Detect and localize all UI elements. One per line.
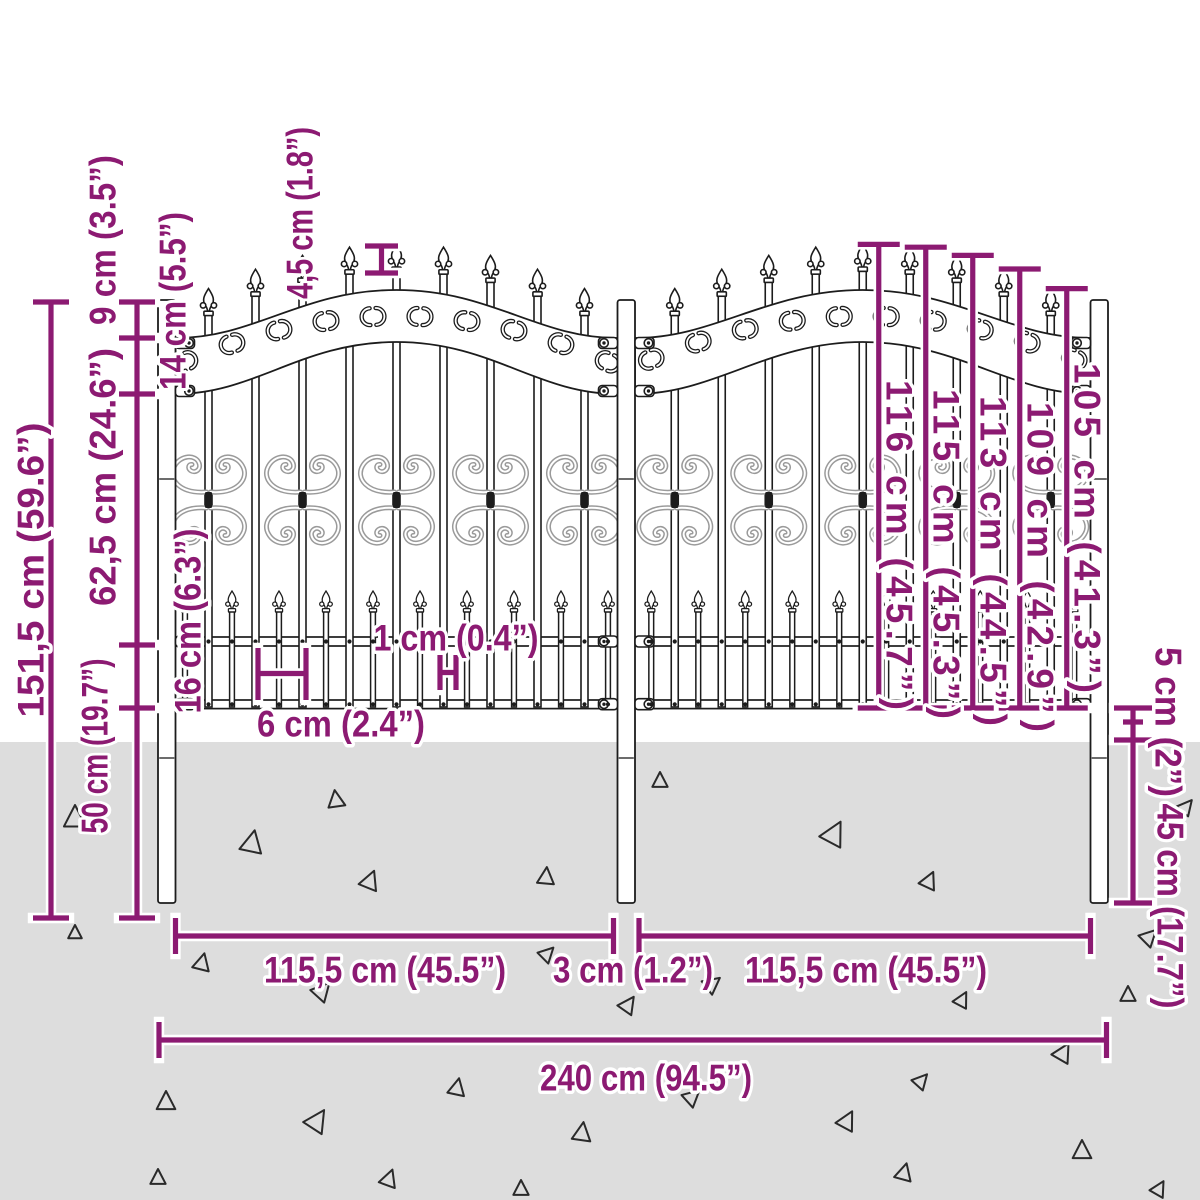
spear-finial-icon bbox=[529, 269, 545, 296]
picket-finial-icon bbox=[320, 591, 333, 612]
spear-finial-icon bbox=[808, 247, 824, 274]
dim-label-ground-section: 50 cm (19.7”) bbox=[75, 659, 116, 834]
rivet bbox=[720, 639, 724, 643]
rivet bbox=[790, 702, 794, 706]
rivet bbox=[720, 702, 724, 706]
picket-finial-icon bbox=[739, 591, 752, 612]
scroll-clip bbox=[487, 492, 494, 508]
rivet bbox=[696, 639, 700, 643]
rivet bbox=[861, 639, 865, 643]
rivet bbox=[978, 639, 982, 643]
fence-picket bbox=[649, 612, 654, 707]
picket-finial-icon bbox=[645, 591, 658, 612]
rivet bbox=[535, 702, 539, 706]
rivet bbox=[743, 639, 747, 643]
dim-label-spear-pitch: 4,5 cm (1.8”) bbox=[280, 127, 321, 299]
scroll-clip bbox=[581, 492, 588, 508]
fence-picket bbox=[696, 612, 701, 707]
dim-label-panel-width-right: 115,5 cm (45.5”) bbox=[745, 950, 987, 991]
dim-label-bar-thickness: 1 cm (0.4”) bbox=[374, 618, 539, 659]
spear-finial-icon bbox=[761, 255, 777, 282]
dim-label-spike-depth: 45 cm (17.7”) bbox=[1150, 804, 1191, 1009]
rivet bbox=[488, 702, 492, 706]
hinge-bracket bbox=[599, 338, 618, 349]
fence-picket bbox=[790, 612, 795, 707]
rivet bbox=[324, 639, 328, 643]
rivet bbox=[1002, 639, 1006, 643]
rivet bbox=[790, 639, 794, 643]
dim-label-total-height: 151,5 cm (59.6”) bbox=[11, 423, 52, 718]
spear-finial-icon bbox=[576, 289, 592, 316]
picket-finial-icon bbox=[508, 591, 521, 612]
rivet bbox=[649, 639, 653, 643]
rivet bbox=[441, 702, 445, 706]
dim-label-post-width: 3 cm (1.2”) bbox=[553, 950, 713, 991]
fence-dimension-diagram: 151,5 cm (59.6”) 9 cm (3.5”) 14 cm (5.5”… bbox=[0, 0, 1200, 1200]
rivet bbox=[465, 702, 469, 706]
rivet bbox=[673, 639, 677, 643]
rivet bbox=[767, 639, 771, 643]
rivet bbox=[743, 702, 747, 706]
rivet bbox=[884, 639, 888, 643]
rivet bbox=[582, 702, 586, 706]
fence-picket bbox=[743, 612, 748, 707]
spear-finial-icon bbox=[482, 255, 498, 282]
picket-finial-icon bbox=[367, 591, 380, 612]
hinge-bracket bbox=[599, 386, 618, 397]
fence-picket bbox=[837, 612, 842, 707]
scroll-clip bbox=[765, 492, 772, 508]
rivet bbox=[814, 702, 818, 706]
fence-post bbox=[618, 300, 636, 903]
rivet bbox=[837, 702, 841, 706]
picket-finial-icon bbox=[555, 591, 568, 612]
spear-finial-icon bbox=[200, 289, 216, 316]
scroll-clip bbox=[299, 492, 306, 508]
fence-picket bbox=[606, 612, 611, 707]
rivet bbox=[559, 639, 563, 643]
fence-picket bbox=[559, 612, 564, 707]
picket-finial-icon bbox=[602, 591, 615, 612]
picket-finial-icon bbox=[273, 591, 286, 612]
rivet bbox=[277, 639, 281, 643]
dim-label-mid-section: 62,5 cm (24.6”) bbox=[83, 348, 124, 606]
hinge-bracket bbox=[635, 386, 654, 397]
rivet bbox=[767, 702, 771, 706]
spear-finial-icon bbox=[714, 269, 730, 296]
rivet bbox=[230, 702, 234, 706]
dim-label-top-section: 9 cm (3.5”) bbox=[83, 155, 124, 325]
rivet bbox=[837, 639, 841, 643]
rivet bbox=[649, 702, 653, 706]
fence-picket bbox=[324, 612, 329, 707]
rivet bbox=[696, 702, 700, 706]
rivet bbox=[347, 639, 351, 643]
scroll-clip bbox=[205, 492, 212, 508]
rivet bbox=[559, 702, 563, 706]
rivet bbox=[606, 702, 610, 706]
rivet bbox=[908, 639, 912, 643]
scroll-clip bbox=[671, 492, 678, 508]
dim-label-panel-width-left: 115,5 cm (45.5”) bbox=[264, 950, 506, 991]
rivet bbox=[673, 702, 677, 706]
dim-label-rail-to-ground: 5 cm (2”) bbox=[1148, 647, 1189, 797]
rivet bbox=[230, 639, 234, 643]
scroll-clip bbox=[393, 492, 400, 508]
picket-finial-icon bbox=[833, 591, 846, 612]
picket-finial-icon bbox=[461, 591, 474, 612]
picket-finial-icon bbox=[226, 591, 239, 612]
dim-label-total-width: 240 cm (94.5”) bbox=[540, 1058, 752, 1099]
hinge-bracket bbox=[1072, 338, 1091, 349]
diagram-canvas: 151,5 cm (59.6”) 9 cm (3.5”) 14 cm (5.5”… bbox=[0, 0, 1200, 1200]
picket-finial-icon bbox=[414, 591, 427, 612]
spear-finial-icon bbox=[435, 247, 451, 274]
fence-picket bbox=[277, 612, 282, 707]
rivet bbox=[606, 639, 610, 643]
dim-label-picket-spacing: 6 cm (2.4”) bbox=[257, 704, 425, 745]
dim-label-arch-band: 14 cm (5.5”) bbox=[153, 212, 194, 390]
fence-picket bbox=[230, 612, 235, 707]
picket-finial-icon bbox=[692, 591, 705, 612]
hinge-bracket bbox=[635, 338, 654, 349]
scroll-clip bbox=[859, 492, 866, 508]
dim-label-rail-gap: 16 cm (6.3”) bbox=[168, 529, 209, 714]
spear-finial-icon bbox=[247, 269, 263, 296]
picket-finial-icon bbox=[786, 591, 799, 612]
spear-finial-icon bbox=[667, 289, 683, 316]
rivet bbox=[814, 639, 818, 643]
rivet bbox=[582, 639, 586, 643]
rivet bbox=[512, 702, 516, 706]
spear-finial-icon bbox=[341, 247, 357, 274]
